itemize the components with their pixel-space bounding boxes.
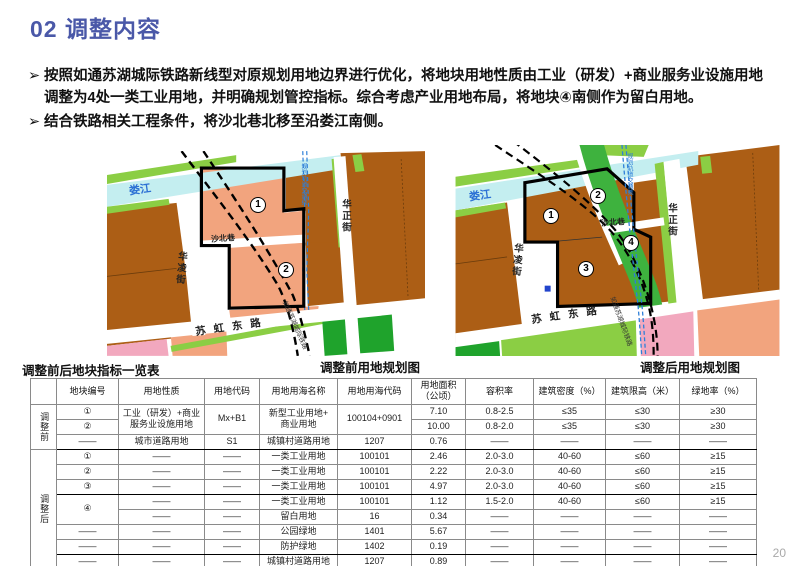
table-cell: —— (57, 434, 119, 449)
table-cell: 0.8-2.5 (466, 404, 534, 419)
table-cell: ③ (57, 479, 119, 494)
slide: 02 调整内容 ➢ 按照如通苏湖城际铁路新线型对原规划用地边界进行优化，将地块用… (0, 0, 800, 566)
table-cell: —— (680, 434, 757, 449)
table-cell: ② (57, 464, 119, 479)
table-cell: 公园绿地 (260, 524, 338, 539)
table-cell: —— (205, 494, 260, 509)
bullet-text: 按照如通苏湖城际铁路新线型对原规划用地边界进行优化，将地块用地性质由工业（研发）… (44, 66, 776, 110)
table-cell: —— (119, 449, 205, 464)
table-cell: —— (119, 464, 205, 479)
table-cell: —— (466, 524, 534, 539)
table-cell: S1 (205, 434, 260, 449)
table-cell: —— (119, 554, 205, 566)
map-before: 娄江 华凌街 华正街 沙北巷 苏虹东路 如通苏湖城际铁路 规划轨道交通线 1 2 (107, 151, 425, 356)
map-caption-after: 调整后用地规划图 (640, 357, 740, 376)
table-cell: ② (57, 419, 119, 434)
table-row: ③————一类工业用地1001014.972.0-3.040-60≤60≥15 (31, 479, 757, 494)
table-title: 调整前后地块指标一览表 (22, 360, 160, 379)
table-cell: 1402 (338, 539, 412, 554)
table-cell: 0.89 (412, 554, 466, 566)
table-cell: —— (466, 539, 534, 554)
column-header: 用地面积（公顷） (412, 379, 466, 405)
table-cell: 1207 (338, 554, 412, 566)
column-header: 地块编号 (57, 379, 119, 405)
table-cell: —— (606, 554, 680, 566)
column-header: 容积率 (466, 379, 534, 405)
table-cell: 0.34 (412, 509, 466, 524)
bullet-item: ➢ 按照如通苏湖城际铁路新线型对原规划用地边界进行优化，将地块用地性质由工业（研… (28, 66, 776, 110)
table-cell: —— (534, 554, 606, 566)
table-cell: ≥15 (680, 449, 757, 464)
map-caption-before: 调整前用地规划图 (320, 357, 420, 376)
table-cell: —— (606, 524, 680, 539)
table-row: ————留白用地160.34———————— (31, 509, 757, 524)
table-cell: —— (680, 509, 757, 524)
table-cell: 10.00 (412, 419, 466, 434)
table-cell: 16 (338, 509, 412, 524)
table-cell: 2.46 (412, 449, 466, 464)
table-cell: 1207 (338, 434, 412, 449)
table-cell: 2.0-3.0 (466, 449, 534, 464)
bullet-item: ➢ 结合铁路相关工程条件，将沙北巷北移至沿娄江南侧。 (28, 112, 776, 134)
row-group-label: 调整前 (31, 404, 57, 449)
table-cell: ≥15 (680, 464, 757, 479)
column-header: 建筑限高（米） (606, 379, 680, 405)
table-cell: ≤60 (606, 494, 680, 509)
table-cell: 1.5-2.0 (466, 494, 534, 509)
table-cell: 0.8-2.0 (466, 419, 534, 434)
table-cell: ① (57, 449, 119, 464)
table-cell: 7.10 (412, 404, 466, 419)
table-cell: 工业（研发）+商业 服务业设施用地 (119, 404, 205, 434)
indicator-table: 地块编号用地性质用地代码用地用海名称用地用海代码用地面积（公顷）容积率建筑密度（… (30, 378, 757, 566)
table-cell: 0.76 (412, 434, 466, 449)
table-cell: —— (466, 554, 534, 566)
table-cell: ≤60 (606, 449, 680, 464)
table-cell: —— (119, 494, 205, 509)
table-row: ——————防护绿地14020.19———————— (31, 539, 757, 554)
table-cell: —— (680, 524, 757, 539)
table-cell: ≥15 (680, 494, 757, 509)
parcel-number: 2 (590, 188, 606, 204)
table-cell: —— (606, 539, 680, 554)
column-header: 用地用海代码 (338, 379, 412, 405)
table-cell: 城镇村道路用地 (260, 554, 338, 566)
table-cell: —— (205, 524, 260, 539)
table-cell: —— (466, 509, 534, 524)
row-group-label: 调整后 (31, 449, 57, 566)
table-cell: —— (57, 524, 119, 539)
land-use-map-before-graphic (107, 151, 425, 356)
bullet-text: 结合铁路相关工程条件，将沙北巷北移至沿娄江南侧。 (44, 112, 392, 134)
column-header: 建筑密度（%） (534, 379, 606, 405)
column-header (31, 379, 57, 405)
table-cell: 100101 (338, 479, 412, 494)
table-cell: —— (119, 524, 205, 539)
table-cell: 2.22 (412, 464, 466, 479)
table-cell: ≤35 (534, 404, 606, 419)
table-cell: —— (680, 539, 757, 554)
table-cell: —— (534, 539, 606, 554)
table-cell: Mx+B1 (205, 404, 260, 434)
table-row: ②————一类工业用地1001012.222.0-3.040-60≤60≥15 (31, 464, 757, 479)
bullet-list: ➢ 按照如通苏湖城际铁路新线型对原规划用地边界进行优化，将地块用地性质由工业（研… (28, 66, 776, 135)
table-cell: —— (119, 479, 205, 494)
table-cell: ≥30 (680, 404, 757, 419)
table-cell: 40-60 (534, 449, 606, 464)
table-cell: —— (606, 509, 680, 524)
map-after: 娄江 华凌街 华正街 沙北巷 苏虹东路 如通苏湖城际铁路 规划轨道交通线 1 2… (455, 145, 780, 356)
table-cell: ≤30 (606, 419, 680, 434)
table-cell: 40-60 (534, 494, 606, 509)
table-cell: 一类工业用地 (260, 449, 338, 464)
table-cell: 一类工业用地 (260, 479, 338, 494)
table-cell: 40-60 (534, 479, 606, 494)
column-header: 绿地率（%） (680, 379, 757, 405)
table-cell: 100101 (338, 464, 412, 479)
table-row: ——————城镇村道路用地12070.89———————— (31, 554, 757, 566)
table-cell: 一类工业用地 (260, 464, 338, 479)
table-cell: ≤60 (606, 479, 680, 494)
table-cell: 新型工业用地+ 商业用地 (260, 404, 338, 434)
table-cell: —— (534, 524, 606, 539)
table-cell: 防护绿地 (260, 539, 338, 554)
column-header: 用地性质 (119, 379, 205, 405)
column-header: 用地用海名称 (260, 379, 338, 405)
table-cell: —— (119, 539, 205, 554)
table-cell: ≥30 (680, 419, 757, 434)
table-row: 调整后①————一类工业用地1001012.462.0-3.040-60≤60≥… (31, 449, 757, 464)
table-cell: 2.0-3.0 (466, 464, 534, 479)
table-cell: ≤35 (534, 419, 606, 434)
land-use-map-after-graphic (455, 145, 780, 356)
table-row: ——城市道路用地S1城镇村道路用地12070.76———————— (31, 434, 757, 449)
table-cell: 一类工业用地 (260, 494, 338, 509)
parcel-number: 4 (623, 235, 639, 251)
table-cell: —— (57, 554, 119, 566)
table-cell: 100101 (338, 449, 412, 464)
table-cell: 城镇村道路用地 (260, 434, 338, 449)
table-cell: 2.0-3.0 (466, 479, 534, 494)
table-cell: —— (606, 434, 680, 449)
parcel-number: 3 (578, 261, 594, 277)
table-row: ④————一类工业用地1001011.121.5-2.040-60≤60≥15 (31, 494, 757, 509)
arrow-bullet-icon: ➢ (28, 66, 44, 110)
table-cell: 0.19 (412, 539, 466, 554)
table-cell: —— (534, 509, 606, 524)
table-cell: —— (205, 464, 260, 479)
table-row: 调整前①工业（研发）+商业 服务业设施用地Mx+B1新型工业用地+ 商业用地10… (31, 404, 757, 419)
table-cell: 1.12 (412, 494, 466, 509)
table-cell: —— (466, 434, 534, 449)
parcel-number: 2 (278, 262, 294, 278)
table-cell: ① (57, 404, 119, 419)
table-cell: 40-60 (534, 464, 606, 479)
table-cell: 城市道路用地 (119, 434, 205, 449)
table-cell: —— (205, 449, 260, 464)
arrow-bullet-icon: ➢ (28, 112, 44, 134)
table-cell: —— (205, 509, 260, 524)
table-cell: 100101 (338, 494, 412, 509)
table-cell: —— (57, 539, 119, 554)
table-cell: —— (680, 554, 757, 566)
table-cell: —— (205, 479, 260, 494)
table-row: ——————公园绿地14015.67———————— (31, 524, 757, 539)
table-cell: 1401 (338, 524, 412, 539)
table-cell: 5.67 (412, 524, 466, 539)
column-header: 用地代码 (205, 379, 260, 405)
table-cell: 100104+0901 (338, 404, 412, 434)
table-cell: —— (205, 554, 260, 566)
table-cell: —— (205, 539, 260, 554)
table-cell: ≥15 (680, 479, 757, 494)
table-cell: —— (119, 509, 205, 524)
table-cell: 留白用地 (260, 509, 338, 524)
table-cell: ≤60 (606, 464, 680, 479)
table-cell: ④ (57, 494, 119, 524)
page-number: 20 (773, 546, 786, 560)
table-cell: 4.97 (412, 479, 466, 494)
page-title: 02 调整内容 (30, 10, 161, 44)
parcel-number: 1 (250, 197, 266, 213)
table-cell: ≤30 (606, 404, 680, 419)
table-cell: —— (534, 434, 606, 449)
parcel-number: 1 (543, 208, 559, 224)
